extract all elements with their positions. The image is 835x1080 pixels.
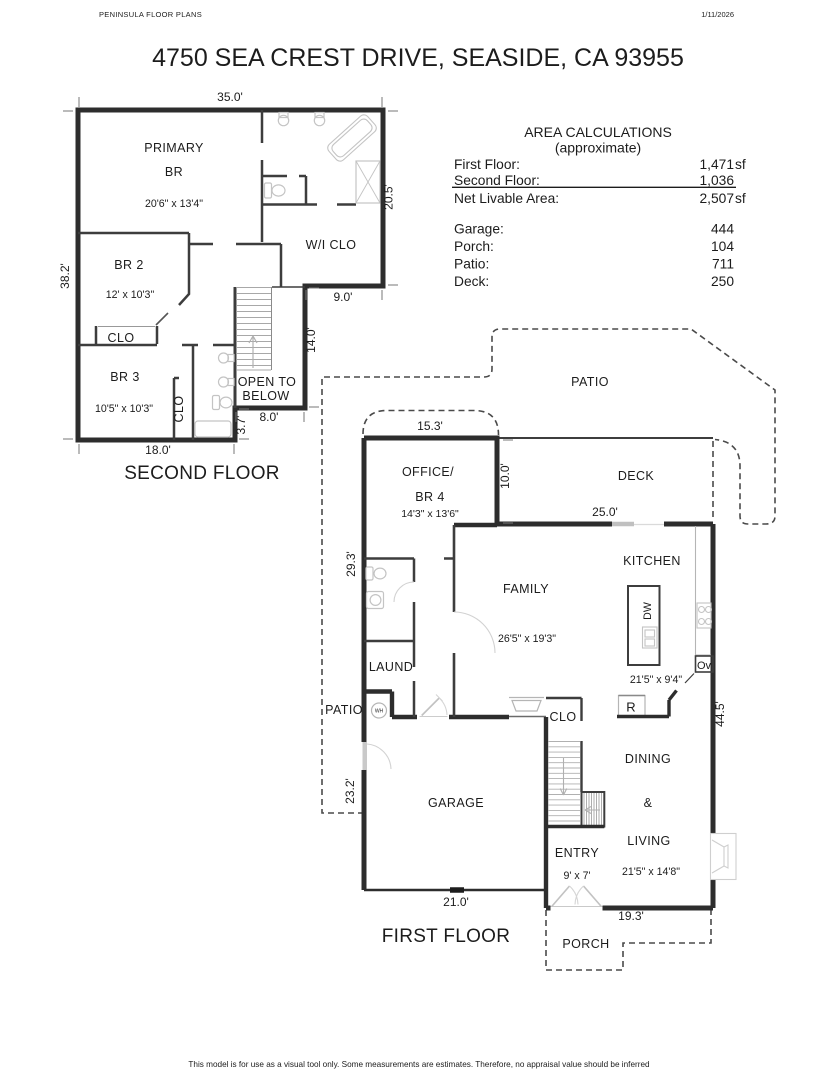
svg-text:Garage:: Garage: [454, 222, 504, 237]
svg-text:CLO: CLO [550, 710, 577, 724]
svg-text:44.5': 44.5' [713, 701, 727, 727]
svg-text:21'5" x 14'8": 21'5" x 14'8" [622, 866, 680, 878]
svg-text:2,507: 2,507 [699, 191, 734, 206]
svg-text:104: 104 [711, 239, 734, 254]
svg-text:SECOND FLOOR: SECOND FLOOR [124, 463, 280, 484]
svg-text:Patio:: Patio: [454, 257, 489, 272]
svg-text:PRIMARY: PRIMARY [144, 141, 204, 155]
svg-text:23.2': 23.2' [343, 778, 357, 804]
svg-text:21.0': 21.0' [443, 895, 469, 909]
svg-text:Second Floor:: Second Floor: [454, 173, 540, 188]
svg-text:PATIO: PATIO [571, 375, 609, 389]
svg-text:29.3': 29.3' [344, 551, 358, 577]
svg-text:OPEN TO: OPEN TO [238, 375, 297, 389]
svg-text:38.2': 38.2' [58, 263, 72, 289]
svg-text:This model is for use as a vis: This model is for use as a visual tool o… [188, 1060, 650, 1069]
svg-text:WH: WH [375, 709, 384, 715]
svg-text:CLO: CLO [172, 396, 186, 423]
svg-text:BELOW: BELOW [242, 389, 289, 403]
svg-text:sf: sf [735, 191, 746, 206]
svg-text:9.0': 9.0' [334, 290, 353, 304]
svg-text:1/11/2026: 1/11/2026 [701, 10, 734, 19]
svg-text:CLO: CLO [108, 331, 135, 345]
svg-text:PORCH: PORCH [562, 937, 609, 951]
svg-text:ENTRY: ENTRY [555, 846, 599, 860]
svg-text:sf: sf [735, 157, 746, 172]
svg-text:4750 SEA CREST DRIVE, SEASIDE,: 4750 SEA CREST DRIVE, SEASIDE, CA 93955 [152, 44, 684, 72]
svg-text:FIRST FLOOR: FIRST FLOOR [382, 926, 511, 947]
svg-text:21'5" x 9'4": 21'5" x 9'4" [630, 674, 682, 686]
svg-text:BR 4: BR 4 [415, 490, 444, 504]
svg-text:14.0': 14.0' [304, 327, 318, 353]
svg-text:19.3': 19.3' [618, 909, 644, 923]
svg-text:14'3" x 13'6": 14'3" x 13'6" [401, 508, 459, 520]
svg-text:DW: DW [642, 602, 654, 620]
svg-text:(approximate): (approximate) [555, 140, 641, 156]
svg-text:3.7': 3.7' [234, 416, 248, 435]
svg-text:W/I CLO: W/I CLO [306, 238, 357, 252]
svg-text:PATIO: PATIO [325, 703, 363, 717]
svg-text:35.0': 35.0' [217, 90, 243, 104]
svg-text:LIVING: LIVING [627, 834, 670, 848]
svg-text:DINING: DINING [625, 752, 671, 766]
svg-text:Deck:: Deck: [454, 274, 489, 289]
svg-text:250: 250 [711, 274, 734, 289]
svg-text:20.5': 20.5' [382, 184, 396, 210]
svg-text:R: R [626, 700, 635, 715]
svg-text:Net Livable Area:: Net Livable Area: [454, 191, 559, 206]
svg-text:1,036: 1,036 [699, 173, 734, 188]
svg-text:Porch:: Porch: [454, 239, 494, 254]
svg-text:25.0': 25.0' [592, 505, 618, 519]
svg-text:12' x 10'3": 12' x 10'3" [106, 289, 155, 301]
svg-text:BR 3: BR 3 [110, 370, 139, 384]
svg-text:1,471: 1,471 [699, 157, 734, 172]
svg-text:26'5" x 19'3": 26'5" x 19'3" [498, 633, 556, 645]
svg-text:FAMILY: FAMILY [503, 582, 549, 596]
svg-text:18.0': 18.0' [145, 443, 171, 457]
svg-text:&: & [644, 796, 653, 810]
svg-text:First Floor:: First Floor: [454, 157, 520, 172]
svg-text:10.0': 10.0' [498, 463, 512, 489]
svg-text:AREA CALCULATIONS: AREA CALCULATIONS [524, 124, 672, 140]
svg-text:Ov: Ov [697, 660, 712, 672]
svg-text:10'5" x 10'3": 10'5" x 10'3" [95, 403, 153, 415]
svg-text:BR: BR [165, 165, 183, 179]
svg-text:444: 444 [711, 222, 734, 237]
svg-text:OFFICE/: OFFICE/ [402, 465, 454, 479]
svg-text:DECK: DECK [618, 469, 655, 483]
svg-text:15.3': 15.3' [417, 419, 443, 433]
svg-text:20'6" x 13'4": 20'6" x 13'4" [145, 198, 203, 210]
svg-text:PENINSULA FLOOR PLANS: PENINSULA FLOOR PLANS [99, 10, 202, 19]
svg-text:LAUND: LAUND [369, 660, 413, 674]
svg-text:711: 711 [712, 257, 734, 272]
svg-text:9' x 7': 9' x 7' [563, 870, 590, 882]
svg-text:GARAGE: GARAGE [428, 796, 484, 810]
svg-text:8.0': 8.0' [260, 410, 279, 424]
svg-text:BR 2: BR 2 [114, 258, 143, 272]
svg-text:KITCHEN: KITCHEN [623, 554, 681, 568]
